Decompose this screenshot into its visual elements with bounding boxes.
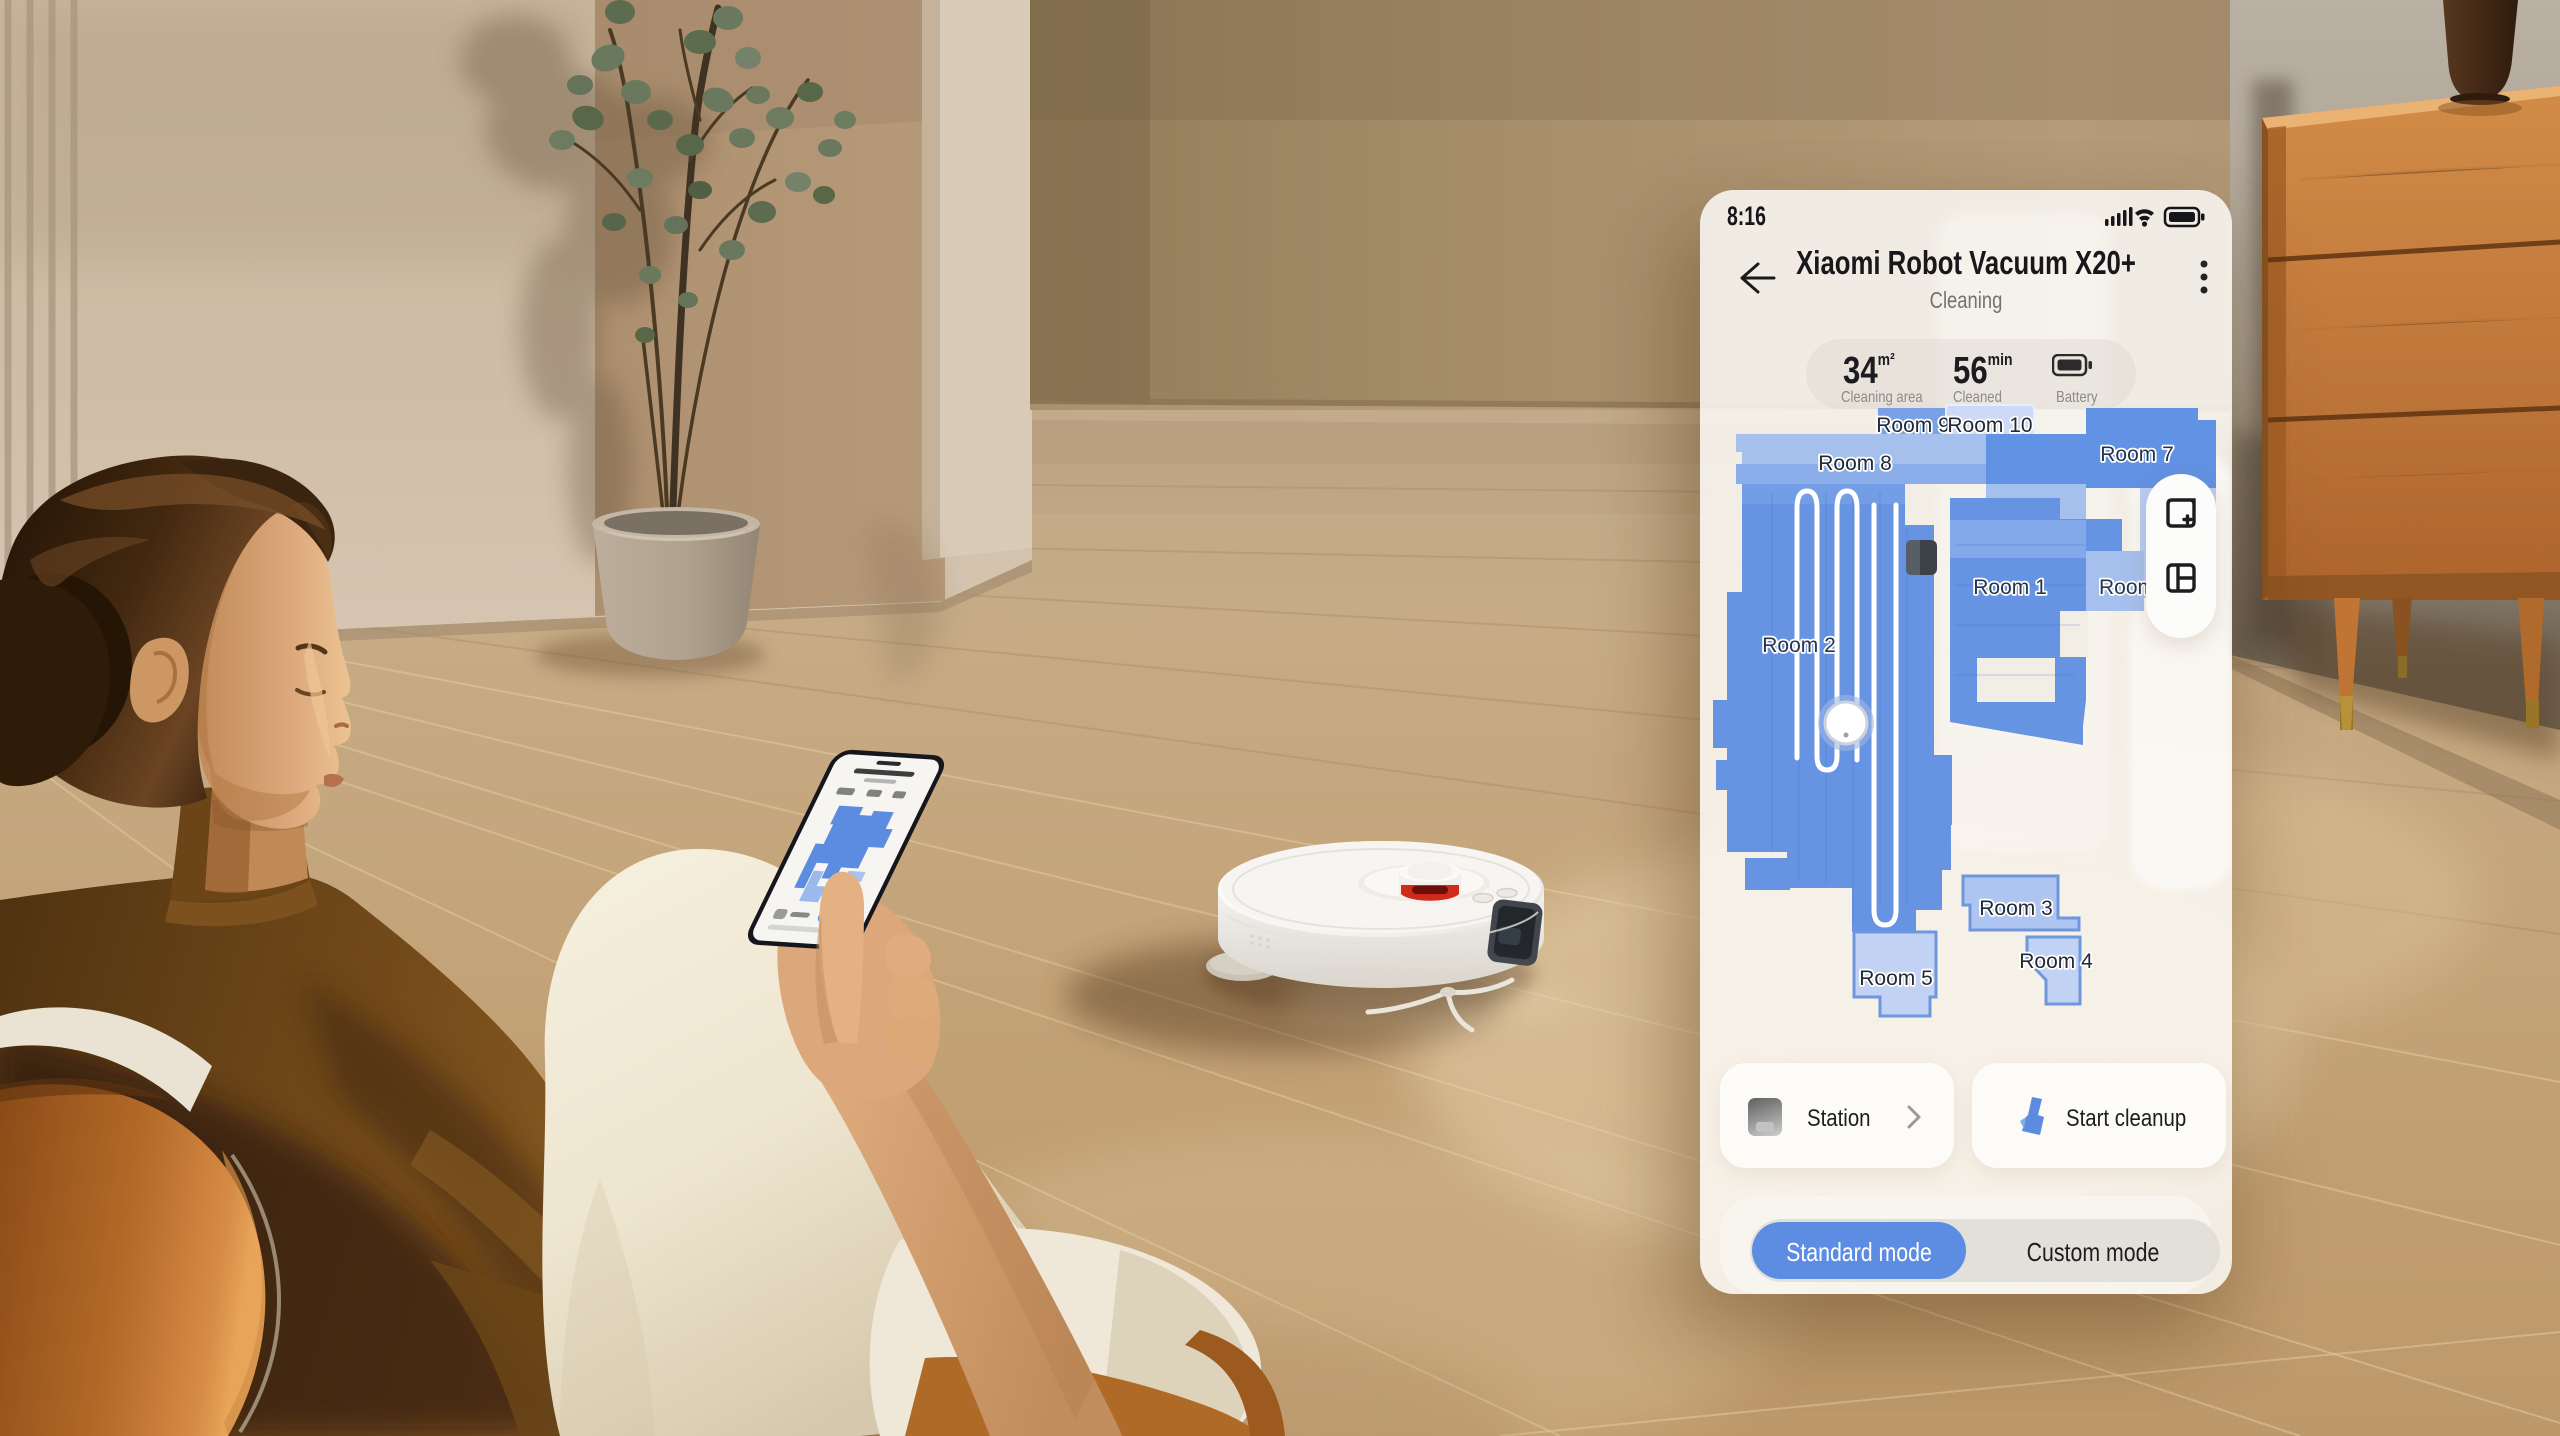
svg-text:Room 10: Room 10 — [1947, 414, 2032, 437]
svg-text:Room 4: Room 4 — [2019, 950, 2093, 973]
svg-text:Room 8: Room 8 — [1818, 452, 1892, 475]
svg-text:Room 2: Room 2 — [1762, 634, 1836, 657]
svg-text:Room 3: Room 3 — [1979, 897, 2053, 920]
svg-text:Room 5: Room 5 — [1859, 967, 1933, 990]
svg-text:Room 9: Room 9 — [1876, 414, 1950, 437]
svg-text:Room 1: Room 1 — [1973, 576, 2047, 599]
svg-text:Room 7: Room 7 — [2100, 443, 2174, 466]
